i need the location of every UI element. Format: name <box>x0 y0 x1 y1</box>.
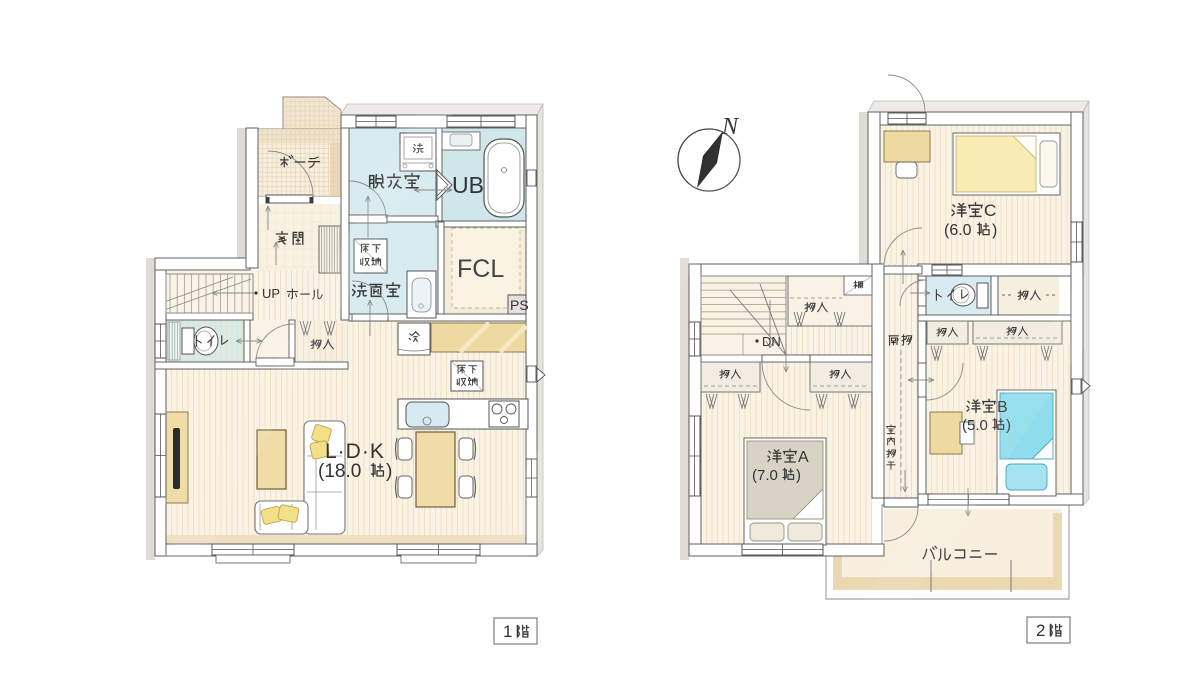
svg-text:2: 2 <box>1036 621 1045 640</box>
svg-text:FCL: FCL <box>457 255 504 283</box>
svg-text:(7.0: (7.0 <box>752 467 778 484</box>
svg-text:A: A <box>798 449 809 466</box>
svg-text:): ) <box>386 461 392 482</box>
svg-text:(6.0: (6.0 <box>944 222 972 239</box>
svg-text:DN: DN <box>762 334 781 349</box>
svg-text:(18.0: (18.0 <box>318 461 361 482</box>
svg-text:): ) <box>796 467 801 484</box>
svg-text:UP: UP <box>262 286 280 301</box>
svg-text:1: 1 <box>503 622 512 641</box>
svg-text:C: C <box>984 201 996 220</box>
svg-text:L·D·K: L·D·K <box>325 440 385 463</box>
svg-text:): ) <box>992 222 997 239</box>
svg-text:UB: UB <box>452 172 484 198</box>
svg-text:PS: PS <box>510 297 529 313</box>
